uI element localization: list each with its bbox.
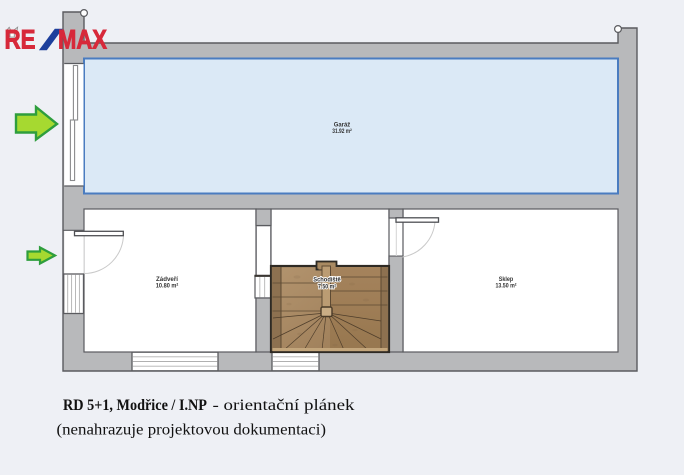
svg-text:10.80 m²: 10.80 m² (156, 283, 179, 290)
svg-text:- orientační plánek: - orientační plánek (213, 397, 355, 414)
svg-text:13.50 m²: 13.50 m² (496, 283, 517, 290)
svg-text:RD 5+1, Modřice / I.NP: RD 5+1, Modřice / I.NP (63, 397, 207, 414)
svg-text:RE: RE (5, 25, 36, 55)
svg-text:(nenahrazuje projektovou dokum: (nenahrazuje projektovou dokumentaci) (57, 422, 327, 439)
svg-text:31.92 m²: 31.92 m² (332, 128, 352, 135)
svg-text:MAX: MAX (58, 25, 107, 55)
svg-text:Schodiště: Schodiště (313, 276, 341, 283)
svg-text:7.50 m²: 7.50 m² (318, 284, 336, 291)
